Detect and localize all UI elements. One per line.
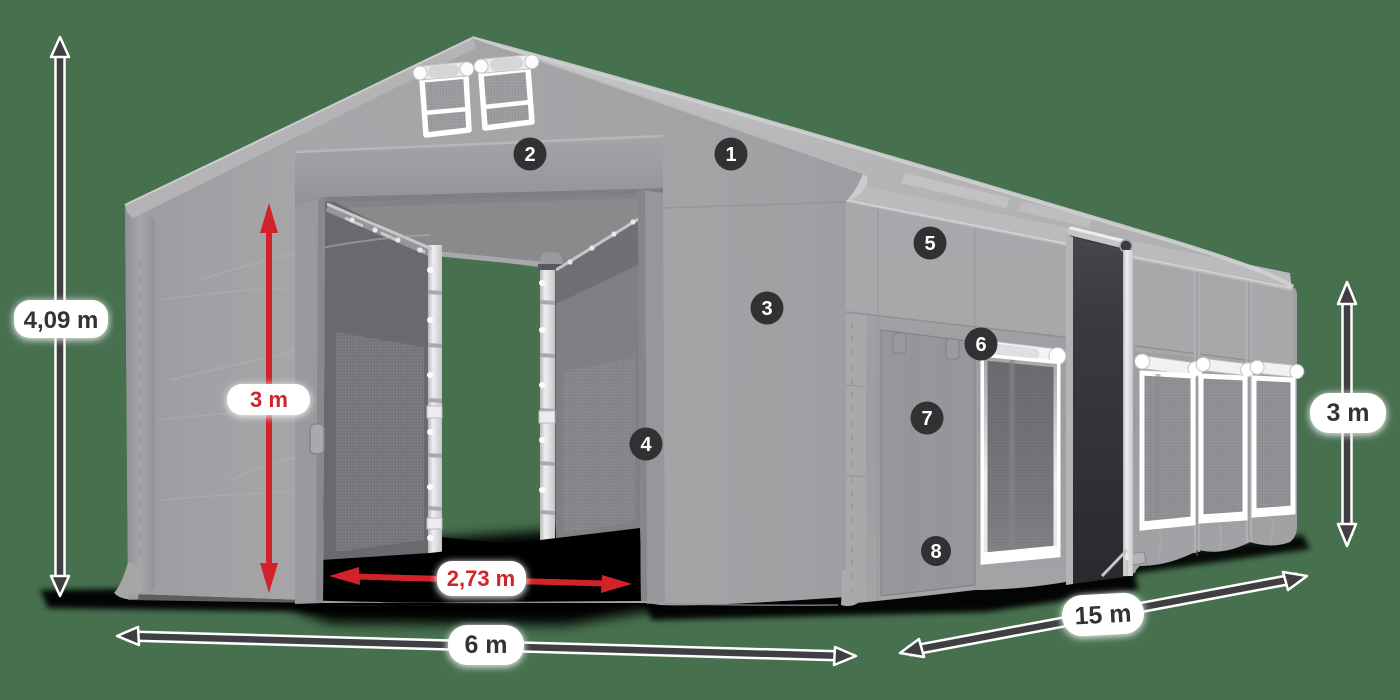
svg-text:8: 8 [930, 541, 941, 563]
svg-text:6: 6 [975, 334, 986, 356]
svg-text:15 m: 15 m [1074, 600, 1132, 631]
svg-text:4,09 m: 4,09 m [24, 307, 99, 334]
svg-text:2,73 m: 2,73 m [447, 566, 516, 591]
svg-text:2: 2 [524, 144, 535, 166]
svg-text:3 m: 3 m [250, 387, 288, 412]
svg-text:1: 1 [725, 144, 736, 166]
svg-text:4: 4 [640, 434, 652, 456]
svg-text:3: 3 [761, 298, 772, 320]
svg-text:5: 5 [924, 233, 935, 255]
svg-text:6 m: 6 m [464, 631, 507, 659]
svg-text:7: 7 [921, 408, 932, 430]
svg-text:3 m: 3 m [1326, 399, 1369, 427]
